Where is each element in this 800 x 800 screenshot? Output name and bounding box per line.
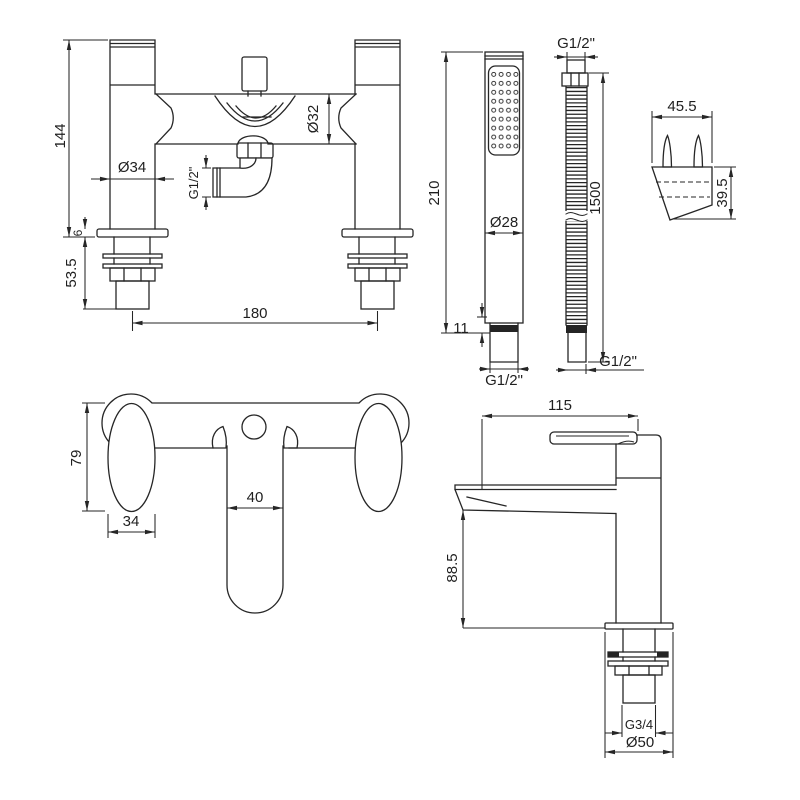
bracket-prong-left [663,136,672,168]
side-lever-detail [556,436,634,444]
side-backnut-facets [629,666,649,675]
dim-455-label: 45.5 [667,98,696,115]
dim-180-label: 180 [242,305,267,322]
dim-455-ext [652,111,712,163]
dim-115-ext [482,419,638,489]
bracket-hidden-lines [656,182,710,197]
left-washer-1 [103,254,162,258]
side-spout [455,485,616,514]
left-tail [116,281,149,309]
dim-40-label: 40 [247,489,264,506]
dim-50-label: Ø50 [626,734,654,751]
dim-outlet-ext [202,168,211,197]
diverter-top-circle [242,415,266,439]
spray-nozzles [490,70,520,151]
dim-handset-g12-label: G1/2" [485,372,523,389]
diverter-dome [215,96,295,127]
dim-79-ext [82,403,105,511]
dim-395-label: 39.5 [714,178,731,207]
hose-top-nut [562,73,588,86]
spout-plan-mask [227,446,283,613]
right-fixing-rod [359,237,395,264]
hose-top-nut-facets [571,73,579,86]
side-base-flange [605,623,673,629]
right-washer-1 [348,254,407,258]
dim-210-label: 210 [426,180,443,205]
dim-hose-bot-label: G1/2" [599,353,637,370]
dim-6-label: 6 [71,229,85,236]
dim-11-label: 11 [453,320,469,337]
hose-top-connector [567,60,585,73]
bracket-prong-right [694,136,703,168]
right-base-plate [342,229,413,237]
plan-view: 79 34 40 [68,394,409,613]
bracket-body [652,167,712,220]
side-tail [623,675,655,703]
side-washer-hatch-l [608,652,619,657]
dim-34-label: Ø34 [118,159,146,176]
hose-bottom-seal [566,325,587,333]
left-base-plate [97,229,168,237]
left-backnut [110,268,155,281]
right-tail [361,281,394,309]
handset-cap-lines [485,56,523,59]
technical-drawing-page: 144 6 53.5 180 Ø34 Ø32 G1/2" 210 11 [0,0,800,800]
dim-885-label: 88.5 [444,553,461,582]
hose-view: G1/2" 1500 G1/2" [554,35,644,374]
side-washer-2 [608,661,668,666]
outlet-elbow [213,158,272,197]
left-backnut-facets [124,268,141,281]
body-right-end [339,94,356,144]
dim-1500-ext [588,73,609,362]
dim-210-ext [441,52,490,333]
dim-28-label: Ø28 [490,214,518,231]
dim-32-label: Ø32 [305,105,322,133]
side-fixing-rod [623,629,655,661]
left-pillar [110,40,155,229]
dim-34b-label: 34 [123,513,140,530]
dim-144-label: 144 [52,123,69,148]
tap-dimension-drawing: 144 6 53.5 180 Ø34 Ø32 G1/2" 210 11 [0,0,800,800]
right-handle-plan [355,404,402,512]
body-left-end [156,94,173,144]
dim-hose-top-label: G1/2" [557,35,595,52]
dim-g34-label: G3/4 [625,717,653,732]
handset-seal-band [490,325,518,332]
side-view: 115 88.5 G3/4 Ø50 [444,397,673,758]
right-pillar [355,40,400,229]
outlet-nut [237,143,273,158]
side-body-column [616,435,661,623]
outlet-nut-facets [248,143,261,158]
handshower-view: 210 11 Ø28 G1/2" [426,52,529,389]
dim-53-label: 53.5 [63,258,80,287]
right-backnut [355,268,400,281]
right-backnut-facets [369,268,386,281]
dim-outlet-label: G1/2" [186,166,201,199]
side-backnut [615,666,662,675]
dim-79-label: 79 [68,450,85,467]
hose-bottom-connector [568,333,586,362]
left-fixing-rod [114,237,150,264]
dim-144-ext [63,40,108,237]
dim-1500-label: 1500 [587,181,604,214]
side-washer-hatch-r [657,652,668,657]
outlet-cap-dome [238,136,268,143]
front-view: 144 6 53.5 180 Ø34 Ø32 G1/2" [52,40,413,331]
left-handle-plan [108,404,155,512]
diverter-knob [242,57,267,91]
dim-115-label: 115 [548,397,572,414]
bracket-view: 45.5 39.5 [652,98,736,220]
